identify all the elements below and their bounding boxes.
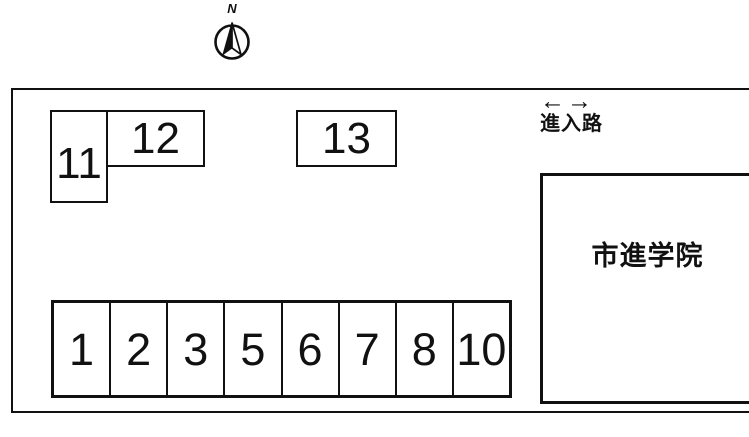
space-number: 6 (298, 327, 323, 372)
entrance-road-marker: ←→ 進入路 (540, 90, 650, 136)
space-number: 3 (183, 327, 208, 372)
parking-space-3: 3 (166, 303, 223, 395)
parking-space-12: 12 (106, 110, 205, 167)
parking-space-5: 5 (223, 303, 280, 395)
parking-space-7: 7 (338, 303, 395, 395)
parking-space-6: 6 (281, 303, 338, 395)
parking-space-2: 2 (109, 303, 166, 395)
parking-space-1: 1 (54, 303, 109, 395)
building-label: 市進学院 (543, 234, 749, 273)
space-number: 12 (131, 117, 180, 161)
space-number: 7 (355, 327, 380, 372)
space-number: 5 (240, 327, 265, 372)
right-arrow-icon: → (567, 87, 594, 115)
entrance-road-label: 進入路 (540, 112, 650, 136)
space-number: 1 (69, 327, 94, 372)
space-number: 10 (456, 327, 506, 372)
north-compass: N (206, 2, 258, 68)
parking-space-11: 11 (50, 110, 108, 203)
two-way-arrows: ←→ (540, 90, 650, 112)
space-number: 13 (322, 117, 371, 161)
north-arrow-icon (208, 15, 256, 65)
building-block: 市進学院 (540, 173, 749, 404)
parking-space-13: 13 (296, 110, 397, 167)
space-number: 11 (56, 142, 102, 186)
left-arrow-icon: ← (540, 87, 567, 115)
parking-lot-diagram: N 11 12 13 ←→ 進入路 市進学院 1 2 3 5 6 7 8 10 (0, 0, 749, 437)
parking-row-bottom: 1 2 3 5 6 7 8 10 (51, 300, 512, 398)
space-number: 8 (412, 327, 437, 372)
compass-north-label: N (206, 2, 258, 15)
parking-space-10: 10 (452, 303, 509, 395)
space-number: 2 (126, 327, 151, 372)
parking-space-8: 8 (395, 303, 452, 395)
